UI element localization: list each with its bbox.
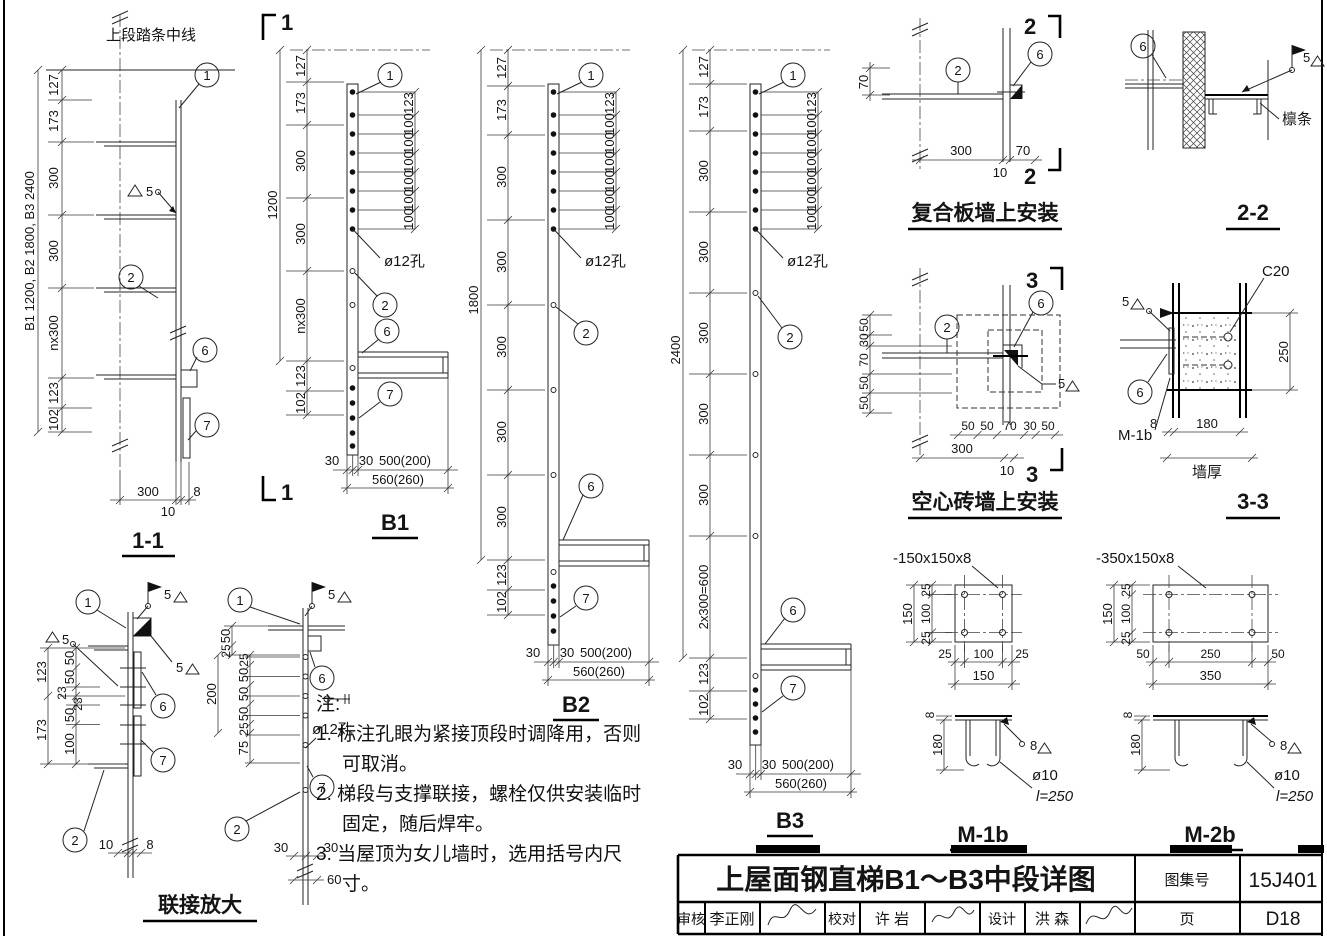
page-number: D18	[1266, 909, 1301, 930]
weld-flag-icon: 5	[1018, 366, 1079, 391]
support-channel	[358, 352, 448, 378]
svg-text:6: 6	[383, 324, 390, 339]
svg-text:75: 75	[236, 741, 251, 755]
svg-text:100: 100	[804, 208, 819, 230]
svg-text:100: 100	[804, 151, 819, 173]
svg-text:560(260): 560(260)	[573, 664, 625, 679]
title-block: 上屋面钢直梯B1～B3中段详图 图集号 15J401 审核 李正刚 校对 许 岩…	[677, 845, 1324, 934]
svg-text:5: 5	[1122, 294, 1129, 309]
svg-text:25: 25	[919, 583, 933, 597]
page-label: 页	[1179, 911, 1194, 928]
reviewer-name: 李正刚	[709, 911, 754, 928]
callout-7: 7	[359, 382, 402, 418]
svg-text:300: 300	[293, 150, 308, 172]
svg-text:100: 100	[919, 604, 933, 624]
svg-text:560(260): 560(260)	[775, 776, 827, 791]
svg-text:200: 200	[204, 683, 219, 705]
svg-text:2: 2	[127, 270, 134, 285]
svg-text:50: 50	[62, 670, 77, 684]
callout-1: 1	[557, 63, 603, 94]
svg-text:5: 5	[146, 184, 153, 199]
svg-text:30: 30	[274, 840, 288, 855]
svg-text:2: 2	[1024, 14, 1036, 39]
svg-text:10: 10	[161, 504, 175, 519]
svg-text:2: 2	[582, 326, 589, 341]
svg-text:100: 100	[602, 189, 617, 211]
svg-text:100: 100	[602, 132, 617, 154]
plan-composite-wall: 2 6 70 300 10 70 2 2 复合板墙上安装	[856, 14, 1062, 229]
section-title: 3-3	[1237, 489, 1269, 514]
notes-header: 注:	[316, 690, 658, 720]
svg-text:30: 30	[857, 333, 871, 347]
elevation-1-1: 上段踏条中线 127 173 300 300 nx300 123 102 B1 …	[22, 11, 235, 556]
svg-text:50: 50	[1136, 647, 1150, 661]
embed-zone-outer	[957, 315, 1060, 408]
svg-text:127: 127	[494, 57, 509, 79]
atlas-number: 15J401	[1249, 869, 1318, 892]
svg-text:300: 300	[951, 441, 973, 456]
svg-text:7: 7	[789, 681, 796, 696]
designer-name: 洪 森	[1035, 911, 1069, 928]
page-frame	[4, 0, 1322, 936]
callout-2: 2	[946, 58, 970, 94]
dim: 127	[46, 74, 61, 96]
svg-text:123: 123	[34, 661, 49, 683]
svg-text:173: 173	[293, 92, 308, 114]
segment-heights-label: B1 1200, B2 1800, B3 2400	[22, 171, 37, 331]
detail-m1b: -150x150x8 25 100 25 150 25 100 25 150 8…	[893, 550, 1074, 850]
anchor-dia-label: ø10	[1274, 767, 1300, 784]
svg-text:30: 30	[728, 757, 742, 772]
svg-text:1: 1	[203, 68, 210, 83]
svg-text:2x300=600: 2x300=600	[696, 565, 711, 630]
svg-text:173: 173	[34, 719, 49, 741]
svg-text:123: 123	[804, 92, 819, 114]
support-channel	[761, 644, 851, 670]
svg-text:2: 2	[954, 63, 961, 78]
weld-flag-icon: 5	[1122, 294, 1174, 331]
weld-flag-icon: 8	[1000, 717, 1051, 753]
svg-text:8: 8	[923, 711, 937, 718]
callout-1: 1	[228, 588, 300, 624]
callout-7: 7	[762, 676, 805, 712]
weld-flag-icon: 5	[137, 582, 187, 619]
reviewer-label: 审核	[677, 911, 705, 927]
svg-text:70: 70	[1003, 419, 1017, 433]
svg-text:6: 6	[587, 479, 594, 494]
svg-text:500(200): 500(200)	[580, 645, 632, 660]
hollow-left-dims: 50 30 70 50 50	[857, 311, 952, 417]
offset-dim: 70	[856, 62, 890, 101]
callout-2: 2	[225, 792, 300, 841]
ladder-rungs	[96, 142, 176, 379]
sheet-title: 上屋面钢直梯B1～B3中段详图	[716, 863, 1096, 895]
svg-text:50: 50	[857, 318, 871, 332]
svg-text:300: 300	[696, 160, 711, 182]
svg-text:6: 6	[318, 671, 325, 686]
svg-text:30: 30	[560, 645, 574, 660]
enlarge-detail-1: 123 173 50 50 23 23 50 100 1 5 5 5 6 7 2	[34, 582, 199, 878]
svg-text:30: 30	[1023, 419, 1037, 433]
callout-6: 6	[1013, 42, 1052, 86]
svg-text:8: 8	[146, 837, 153, 852]
svg-text:25: 25	[1119, 583, 1133, 597]
svg-text:100: 100	[62, 733, 77, 755]
svg-text:500(200): 500(200)	[379, 453, 431, 468]
svg-text:300: 300	[696, 322, 711, 344]
svg-text:100: 100	[804, 170, 819, 192]
wall-hatch	[1183, 32, 1205, 148]
svg-text:30: 30	[762, 757, 776, 772]
plan-title: 复合板墙上安装	[911, 201, 1059, 225]
svg-text:2: 2	[1024, 164, 1036, 189]
svg-text:6: 6	[159, 699, 166, 714]
note-item: 1. 标注孔眼为紧接顶段时调降用，否则可取消。	[316, 720, 658, 780]
svg-text:7: 7	[203, 418, 210, 433]
svg-text:50: 50	[236, 707, 251, 721]
callout-6: 6	[310, 652, 334, 690]
svg-text:100: 100	[401, 113, 416, 135]
svg-text:3: 3	[1026, 462, 1038, 487]
callout-6: 6	[362, 319, 399, 353]
svg-text:50: 50	[62, 651, 77, 665]
weld-flag-icon: 5	[46, 632, 118, 686]
break-mark	[112, 11, 128, 452]
plan-hollow-brick-wall: 2 6 5 50 30 70 50 50 50 50 70 30 50 300 …	[857, 268, 1079, 518]
detail-title: M-1b	[957, 822, 1008, 847]
svg-text:250: 250	[1276, 341, 1291, 363]
svg-text:500(200): 500(200)	[782, 757, 834, 772]
svg-text:25: 25	[919, 631, 933, 645]
svg-text:150: 150	[1100, 603, 1115, 625]
svg-text:300: 300	[950, 143, 972, 158]
svg-text:1800: 1800	[466, 286, 481, 315]
svg-text:300: 300	[696, 484, 711, 506]
svg-text:1: 1	[386, 68, 393, 83]
signature-icon	[932, 907, 974, 922]
atlas-label: 图集号	[1164, 872, 1209, 889]
svg-text:2: 2	[381, 298, 388, 313]
detail-b1: 1 1 1200 127 173 300 300 nx300 123 102 1…	[263, 10, 458, 538]
bracket-bolt	[997, 85, 1025, 99]
signature-icon	[1086, 906, 1132, 924]
svg-text:5: 5	[164, 587, 171, 602]
svg-text:300: 300	[494, 166, 509, 188]
svg-text:123: 123	[696, 663, 711, 685]
callout-1: 1	[76, 590, 126, 628]
svg-text:25: 25	[938, 647, 952, 661]
svg-text:300: 300	[494, 251, 509, 273]
svg-text:300: 300	[494, 506, 509, 528]
m2b-side-dims: 25 100 25 150	[1100, 581, 1150, 646]
callout-2: 2	[758, 296, 802, 349]
svg-text:300: 300	[137, 484, 159, 499]
svg-text:150: 150	[973, 668, 995, 683]
svg-text:1: 1	[236, 593, 243, 608]
checker-name: 许 岩	[875, 911, 909, 928]
weld-fill	[133, 618, 151, 636]
svg-text:350: 350	[1200, 668, 1222, 683]
svg-text:100: 100	[804, 132, 819, 154]
detail-title: M-2b	[1184, 822, 1235, 847]
weld-flag-icon: 5	[151, 636, 199, 675]
plate-size-label: -350x150x8	[1096, 550, 1174, 567]
weld-flag-icon: 5	[1242, 45, 1324, 92]
m2b-bottom-dims: 50 250 50 350	[1136, 645, 1285, 690]
hole-label: ø12孔	[384, 253, 425, 270]
svg-text:50: 50	[857, 396, 871, 410]
svg-text:25: 25	[237, 722, 251, 736]
m1b-side-dims: 25 100 25 150	[900, 581, 952, 646]
svg-text:25: 25	[1015, 647, 1029, 661]
svg-text:5: 5	[1058, 376, 1065, 391]
callout-2: 2	[355, 273, 397, 317]
svg-text:2: 2	[71, 833, 78, 848]
svg-text:100: 100	[401, 170, 416, 192]
bolt-holes	[551, 89, 557, 634]
embed-ref-label: M-1b	[1118, 427, 1152, 444]
plan-title: 空心砖墙上安装	[912, 490, 1059, 514]
callout-6: 6	[1014, 291, 1053, 347]
svg-text:50: 50	[1041, 419, 1055, 433]
svg-text:6: 6	[1139, 39, 1146, 54]
ladder-flat-bar	[750, 84, 761, 745]
section-2-2: 6 5 檩条 2-2	[1125, 30, 1324, 229]
svg-text:2: 2	[233, 822, 240, 837]
svg-text:50: 50	[218, 629, 233, 643]
section-title: 2-2	[1237, 200, 1269, 225]
svg-text:100: 100	[401, 208, 416, 230]
callout-7: 7	[188, 413, 219, 440]
section-cut-mark: 1 1	[263, 10, 293, 505]
svg-text:123: 123	[293, 365, 308, 387]
callout-6: 6	[563, 474, 603, 540]
svg-text:50: 50	[961, 419, 975, 433]
weld-flag-icon: 8	[1247, 717, 1301, 753]
anchor-holes	[962, 592, 1006, 636]
detail-title: B1	[381, 510, 409, 535]
svg-text:123: 123	[494, 564, 509, 586]
svg-text:25: 25	[219, 644, 233, 658]
purlin-label: 檩条	[1282, 110, 1312, 128]
purlin	[1205, 60, 1268, 140]
svg-text:6: 6	[1037, 296, 1044, 311]
m2b-elevation: 8 180	[1121, 711, 1268, 774]
svg-text:8: 8	[1121, 711, 1135, 718]
designer-label: 设计	[988, 911, 1016, 927]
b2-bottom-dims: 30 30 500(200) 560(260)	[526, 566, 659, 686]
callout-2: 2	[556, 307, 598, 345]
svg-text:173: 173	[494, 99, 509, 121]
svg-text:102: 102	[293, 392, 308, 414]
svg-text:8: 8	[1280, 738, 1287, 753]
svg-text:7: 7	[386, 387, 393, 402]
svg-text:300: 300	[494, 336, 509, 358]
detail-b3: 2400 127 173 300 300 300 300 300 2x300=6…	[668, 46, 861, 836]
weld-flag-icon: 5	[305, 582, 351, 616]
svg-text:1: 1	[281, 480, 293, 505]
dim: 173	[46, 110, 61, 132]
svg-text:8: 8	[193, 484, 200, 499]
svg-text:180: 180	[1128, 734, 1143, 756]
dim: 300	[46, 240, 61, 262]
svg-text:560(260): 560(260)	[372, 472, 424, 487]
hollow-bottom-dims: 50 50 70 30 50 300 10	[912, 419, 1063, 478]
angle-bracket	[308, 636, 321, 651]
callout-6: 6	[765, 598, 805, 644]
svg-text:100: 100	[602, 151, 617, 173]
svg-text:300: 300	[293, 223, 308, 245]
elevation-bottom-dims: 300 10 8	[110, 462, 201, 519]
callout-6: 6	[190, 338, 217, 371]
sec33-bottom-dims: 8 180 墙厚	[1150, 416, 1258, 481]
svg-text:250: 250	[1200, 647, 1220, 661]
svg-text:300: 300	[696, 241, 711, 263]
svg-text:30: 30	[325, 453, 339, 468]
anchor-length-label: l=250	[1036, 788, 1074, 805]
note-item: 3. 当屋顶为女儿墙时，选用括号内尺寸。	[316, 840, 658, 900]
svg-text:10: 10	[993, 165, 1007, 180]
composite-bottom-dims: 300 10 70	[912, 143, 1042, 180]
svg-text:2: 2	[786, 330, 793, 345]
svg-text:1: 1	[587, 68, 594, 83]
svg-text:7: 7	[159, 753, 166, 768]
general-notes: 注: 1. 标注孔眼为紧接顶段时调降用，否则可取消。 2. 梯段与支撑联接，螺栓…	[316, 690, 658, 900]
m1b-bottom-dims: 25 100 25 150	[938, 645, 1029, 690]
enlarge-title: 联接放大	[158, 893, 242, 917]
svg-text:127: 127	[293, 55, 308, 77]
svg-text:50: 50	[980, 419, 994, 433]
anchor-holes	[1166, 592, 1255, 636]
callout-1: 1	[759, 63, 805, 94]
section-title: 1-1	[132, 528, 164, 553]
hole-label: ø12孔	[585, 253, 626, 270]
section-cut-mark: 2 2	[1024, 14, 1060, 189]
svg-text:23: 23	[55, 686, 69, 700]
svg-text:100: 100	[602, 208, 617, 230]
detail-m2b: -350x150x8 25 100 25 150 50 250 50 350 8…	[1096, 550, 1314, 850]
svg-text:100: 100	[401, 189, 416, 211]
svg-text:2: 2	[943, 320, 950, 335]
hole-label: ø12孔	[787, 253, 828, 270]
svg-text:100: 100	[602, 113, 617, 135]
svg-text:100: 100	[1119, 604, 1133, 624]
splice-plate	[134, 652, 141, 708]
svg-text:30: 30	[359, 453, 373, 468]
embed-plate-plan	[1153, 585, 1268, 642]
svg-text:6: 6	[1136, 385, 1143, 400]
svg-text:50: 50	[236, 687, 251, 701]
rail-holes	[303, 655, 308, 793]
dim: 300	[46, 167, 61, 189]
svg-text:2400: 2400	[668, 336, 683, 365]
svg-text:30: 30	[526, 645, 540, 660]
svg-text:8: 8	[1030, 738, 1037, 753]
plate-size-label: -150x150x8	[893, 550, 971, 567]
svg-text:8: 8	[1150, 416, 1157, 431]
svg-text:7: 7	[582, 591, 589, 606]
wall-thickness-label: 墙厚	[1192, 464, 1222, 481]
svg-text:102: 102	[494, 591, 509, 613]
svg-text:300: 300	[494, 421, 509, 443]
svg-text:70: 70	[1016, 143, 1030, 158]
svg-text:3: 3	[1026, 268, 1038, 293]
svg-text:150: 150	[900, 603, 915, 625]
svg-text:25: 25	[1119, 631, 1133, 645]
splice-plate	[183, 398, 190, 458]
svg-text:5: 5	[328, 587, 335, 602]
concrete-label: C20	[1262, 263, 1290, 280]
ladder-flat-bar	[548, 84, 559, 645]
svg-text:nx300: nx300	[293, 298, 308, 333]
dim-overall: 1200	[265, 191, 280, 220]
svg-text:50: 50	[236, 668, 251, 682]
svg-text:127: 127	[696, 56, 711, 78]
svg-text:70: 70	[857, 353, 871, 367]
svg-text:180: 180	[930, 734, 945, 756]
dim: 123	[46, 382, 61, 404]
svg-text:100: 100	[804, 189, 819, 211]
m1b-elevation: 8 180	[923, 711, 1012, 774]
svg-text:10: 10	[1000, 463, 1014, 478]
svg-text:50: 50	[857, 376, 871, 390]
checker-label: 校对	[828, 911, 856, 927]
support-channel	[559, 540, 649, 566]
svg-text:1: 1	[281, 10, 293, 35]
svg-text:100: 100	[401, 132, 416, 154]
callout-7: 7	[560, 586, 598, 617]
concrete-fill	[1179, 313, 1240, 390]
note-item: 2. 梯段与支撑联接，螺栓仅供安装临时固定，随后焊牢。	[316, 780, 658, 840]
drawing-canvas: 上段踏条中线 127 173 300 300 nx300 123 102 B1 …	[0, 0, 1327, 936]
d1-bottom-dims: 10 8	[99, 837, 154, 857]
svg-text:123: 123	[401, 92, 416, 114]
svg-text:5: 5	[1303, 50, 1310, 65]
section-3-3: 5 6 C20 250 M-1b 8 180 墙厚 3-3	[1118, 263, 1298, 518]
svg-text:300: 300	[696, 403, 711, 425]
weld-flag-icon: 5	[128, 184, 176, 213]
bolt-holes	[753, 89, 759, 735]
svg-text:1: 1	[84, 595, 91, 610]
embed-plate-plan	[955, 585, 1012, 642]
svg-text:25: 25	[237, 653, 251, 667]
anchor-dia-label: ø10	[1032, 767, 1058, 784]
svg-text:100: 100	[401, 151, 416, 173]
svg-text:100: 100	[804, 113, 819, 135]
svg-text:123: 123	[602, 92, 617, 114]
svg-text:70: 70	[856, 75, 871, 89]
callout-6: 6	[1128, 354, 1167, 404]
svg-text:10: 10	[99, 837, 113, 852]
svg-text:100: 100	[602, 170, 617, 192]
svg-text:180: 180	[1196, 416, 1218, 431]
callout-7: 7	[141, 740, 175, 772]
svg-text:173: 173	[696, 96, 711, 118]
svg-text:1: 1	[789, 68, 796, 83]
anchor-length-label: l=250	[1276, 788, 1314, 805]
svg-text:6: 6	[789, 603, 796, 618]
bolt-holes	[350, 89, 356, 449]
callout-2: 2	[119, 265, 158, 298]
callout-6: 6	[142, 672, 175, 718]
svg-text:50: 50	[62, 708, 77, 722]
svg-text:6: 6	[1036, 47, 1043, 62]
svg-text:102: 102	[696, 694, 711, 716]
detail-b2: 1800 127 173 300 300 300 300 300 123 102…	[466, 46, 659, 720]
svg-text:5: 5	[62, 632, 69, 647]
support-bracket	[181, 370, 197, 387]
callout-1: 1	[356, 63, 402, 94]
